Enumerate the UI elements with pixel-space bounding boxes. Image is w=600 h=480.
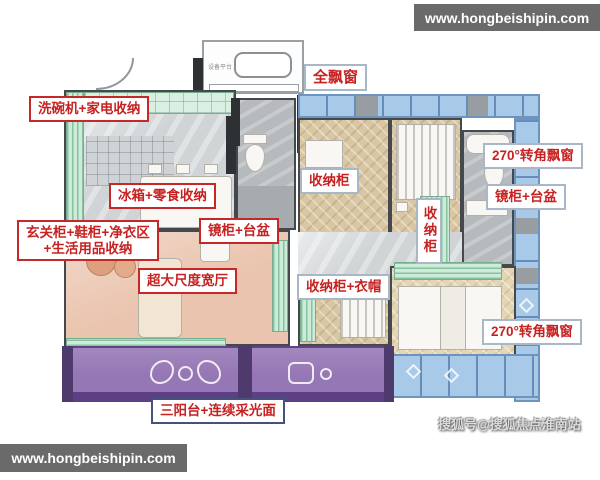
balcony-table bbox=[178, 366, 193, 381]
label-fridge-snack-storage: 冰箱+零食收纳 bbox=[109, 183, 216, 209]
label-corner-bay-window-top: 270°转角飘窗 bbox=[483, 143, 583, 169]
label-extra-wide-living-hall: 超大尺度宽厅 bbox=[138, 268, 237, 294]
watermark-sohu-credit: 搜狐号@搜狐焦点淮南站 bbox=[438, 414, 581, 433]
label-entry-cabinet-storage: 玄关柜+鞋柜+净衣区 +生活用品收纳 bbox=[17, 220, 159, 261]
label-entry-cabinet-line1: 玄关柜+鞋柜+净衣区 bbox=[26, 225, 150, 241]
balcony-pier bbox=[238, 346, 252, 402]
label-mirror-cabinet-basin-left: 镜柜+台盆 bbox=[199, 218, 279, 244]
bed-panel bbox=[440, 287, 466, 349]
bedroom-c-cabinet bbox=[394, 262, 502, 280]
label-triple-balcony-daylight: 三阳台+连续采光面 bbox=[151, 398, 285, 424]
nightstand bbox=[396, 202, 408, 212]
balcony-lounge bbox=[288, 362, 314, 384]
bathroom-wall bbox=[231, 98, 240, 146]
ac-unit-shape bbox=[234, 52, 292, 78]
toilet bbox=[243, 134, 267, 144]
entry-door-arc bbox=[96, 58, 134, 90]
dining-chair bbox=[204, 164, 218, 174]
label-mirror-cabinet-basin-right: 镜柜+台盆 bbox=[486, 184, 566, 210]
label-storage-cabinet-vertical: 收纳柜 bbox=[416, 198, 442, 264]
bay-pier bbox=[468, 96, 488, 116]
bed-top-right bbox=[396, 124, 456, 200]
dining-chair bbox=[176, 164, 190, 174]
label-full-bay-window: 全飘窗 bbox=[304, 64, 367, 91]
balcony bbox=[62, 346, 394, 394]
floor-plan-page: 设备平台 bbox=[0, 0, 600, 480]
balcony-pier bbox=[62, 346, 73, 402]
dining-chair bbox=[148, 164, 162, 174]
tv-cabinet bbox=[272, 240, 288, 332]
top-bay-window bbox=[298, 94, 540, 118]
bay-pier bbox=[516, 218, 538, 234]
bay-pier bbox=[356, 96, 378, 116]
watermark-top-right: www.hongbeishipin.com bbox=[414, 4, 600, 31]
label-storage-cabinet-small: 收纳柜 bbox=[300, 168, 359, 194]
label-storage-cabinet-wardrobe: 收纳柜+衣帽 bbox=[297, 274, 390, 300]
equipment-platform-label: 设备平台 bbox=[208, 62, 232, 71]
desk bbox=[305, 140, 343, 168]
balcony-pier bbox=[384, 346, 394, 402]
label-dishwasher-appliance-storage: 洗碗机+家电收纳 bbox=[29, 96, 149, 122]
balcony-side-table bbox=[320, 368, 332, 380]
equipment-platform: 设备平台 bbox=[202, 40, 304, 94]
watermark-bottom-left: www.hongbeishipin.com bbox=[0, 444, 187, 472]
label-entry-cabinet-line2: +生活用品收纳 bbox=[26, 241, 150, 257]
bay-pier bbox=[516, 268, 538, 284]
wall-segment bbox=[193, 58, 203, 94]
label-corner-bay-window-bottom: 270°转角飘窗 bbox=[482, 319, 582, 345]
